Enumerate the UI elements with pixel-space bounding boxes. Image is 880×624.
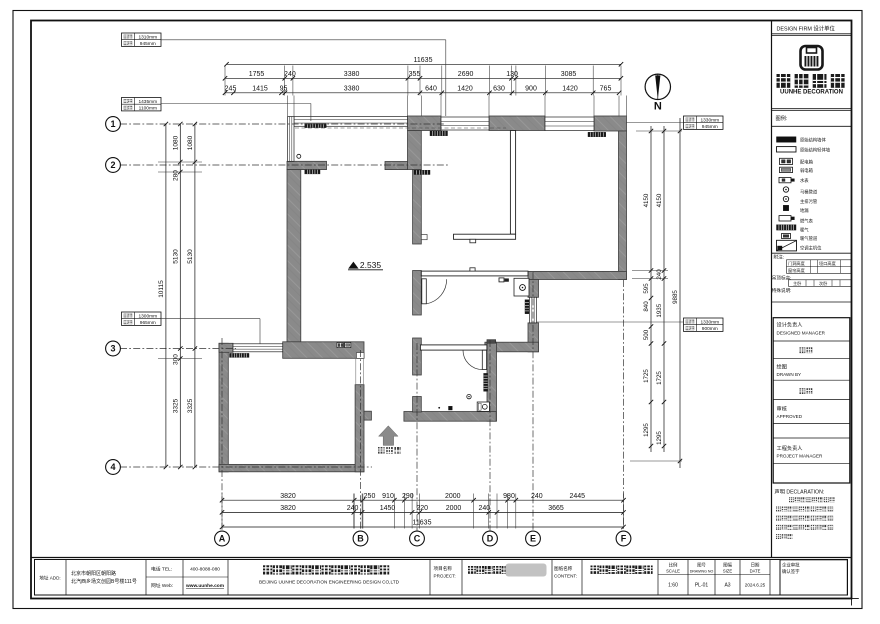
svg-text:3085: 3085 — [561, 71, 577, 78]
svg-text:1080: 1080 — [187, 135, 194, 150]
svg-text:240: 240 — [347, 505, 359, 512]
svg-text:95: 95 — [280, 85, 288, 92]
svg-text:2.535: 2.535 — [360, 260, 382, 270]
svg-text:10115: 10115 — [158, 280, 165, 298]
svg-text:主卧: 主卧 — [793, 280, 801, 287]
svg-text:地址 ADD:: 地址 ADD: — [39, 575, 60, 581]
svg-text:5130: 5130 — [173, 249, 180, 264]
svg-text:1420: 1420 — [562, 85, 578, 92]
svg-text:250: 250 — [364, 493, 376, 500]
svg-text:4150: 4150 — [643, 193, 650, 207]
svg-text:2: 2 — [110, 160, 115, 170]
svg-text:A: A — [219, 534, 226, 544]
svg-text:9885: 9885 — [672, 290, 679, 304]
svg-text:主排污管: 主排污管 — [800, 198, 818, 205]
svg-text:PROJECT MANAGER: PROJECT MANAGER — [777, 454, 824, 459]
svg-text:1:60: 1:60 — [668, 583, 678, 589]
svg-text:900mm: 900mm — [702, 326, 718, 332]
svg-text:特殊说明:: 特殊说明: — [772, 287, 792, 294]
svg-text:原始结构轻体墙: 原始结构轻体墙 — [800, 146, 831, 153]
svg-text:PROJECT:: PROJECT: — [434, 574, 456, 579]
svg-text:3380: 3380 — [344, 85, 360, 92]
svg-text:DESIGN FIRM 设计单位: DESIGN FIRM 设计单位 — [777, 25, 836, 33]
svg-text:1755: 1755 — [249, 71, 265, 78]
svg-text:1330mm: 1330mm — [700, 117, 719, 123]
svg-text:280: 280 — [173, 170, 180, 181]
svg-text:2000: 2000 — [446, 505, 462, 512]
svg-text:965mm: 965mm — [140, 320, 156, 326]
svg-text:声明 DECLARATION:: 声明 DECLARATION: — [775, 488, 825, 496]
svg-text:APPROVED: APPROVED — [777, 414, 803, 419]
svg-text:11635: 11635 — [413, 520, 432, 527]
svg-text:1310mm: 1310mm — [138, 34, 157, 40]
svg-text:2000: 2000 — [445, 493, 461, 500]
svg-text:3325: 3325 — [173, 398, 180, 413]
svg-text:3325: 3325 — [187, 398, 194, 413]
svg-text:1935: 1935 — [656, 303, 663, 317]
svg-text:E: E — [530, 534, 536, 544]
svg-text:2690: 2690 — [458, 71, 474, 78]
svg-text:图例:: 图例: — [776, 114, 788, 122]
svg-text:3820: 3820 — [280, 505, 296, 512]
svg-text:945mm: 945mm — [702, 124, 718, 130]
svg-text:240: 240 — [284, 71, 296, 78]
svg-text:比例: 比例 — [669, 562, 678, 569]
svg-text:1725: 1725 — [643, 369, 650, 383]
svg-text:3665: 3665 — [548, 505, 564, 512]
svg-text:1295: 1295 — [643, 423, 650, 437]
svg-text:F: F — [621, 534, 627, 544]
svg-text:原始结构墙体: 原始结构墙体 — [800, 137, 826, 144]
svg-text:项目名称: 项目名称 — [434, 565, 453, 572]
svg-text:11635: 11635 — [414, 57, 433, 64]
svg-text:400-8088-080: 400-8088-080 — [190, 567, 220, 573]
svg-text:审核: 审核 — [777, 405, 787, 413]
svg-text:B: B — [357, 534, 364, 544]
svg-text:840: 840 — [643, 301, 650, 312]
svg-text:水表: 水表 — [800, 177, 809, 184]
svg-text:电话 TEL:: 电话 TEL: — [151, 566, 172, 573]
svg-text:弱电箱: 弱电箱 — [800, 167, 814, 174]
svg-text:1450: 1450 — [380, 505, 396, 512]
svg-text:980: 980 — [503, 493, 515, 500]
svg-text:1435mm: 1435mm — [138, 99, 157, 105]
svg-text:220: 220 — [416, 505, 428, 512]
svg-text:355: 355 — [409, 71, 421, 78]
svg-text:SIZE: SIZE — [723, 569, 733, 574]
svg-text:北汽西乡场文创园B号楼111号: 北汽西乡场文创园B号楼111号 — [71, 578, 137, 585]
svg-text:绘图: 绘图 — [777, 363, 787, 371]
svg-text:图纸名称: 图纸名称 — [554, 565, 573, 572]
svg-text:5130: 5130 — [187, 249, 194, 264]
svg-text:DRAWING NO: DRAWING NO — [690, 570, 714, 574]
svg-text:1100mm: 1100mm — [139, 106, 157, 112]
svg-text:1295: 1295 — [656, 431, 663, 445]
svg-text:空调主机位: 空调主机位 — [800, 245, 822, 252]
svg-text:300: 300 — [173, 354, 180, 365]
svg-text:附注:: 附注: — [774, 254, 784, 261]
svg-text:图幅: 图幅 — [723, 562, 732, 569]
svg-text:企业审批: 企业审批 — [782, 562, 800, 569]
svg-text:DRAWN BY: DRAWN BY — [777, 372, 802, 377]
svg-text:245: 245 — [225, 85, 237, 92]
svg-text:工程负责人: 工程负责人 — [777, 444, 803, 452]
svg-text:630: 630 — [493, 85, 505, 92]
svg-text:地漏: 地漏 — [800, 207, 809, 214]
svg-text:130: 130 — [506, 71, 518, 78]
svg-text:2445: 2445 — [570, 493, 586, 500]
svg-text:500: 500 — [643, 329, 650, 340]
svg-text:确认签字: 确认签字 — [782, 568, 800, 575]
svg-text:1080: 1080 — [173, 135, 180, 150]
svg-text:595: 595 — [643, 283, 650, 294]
svg-text:CONTENT:: CONTENT: — [554, 574, 577, 579]
svg-text:DESIGNED MANAGER: DESIGNED MANAGER — [777, 331, 826, 336]
svg-text:3: 3 — [110, 344, 115, 354]
svg-text:C: C — [414, 534, 421, 544]
svg-text:N: N — [654, 101, 662, 113]
svg-text:网址 Web:: 网址 Web: — [151, 582, 173, 589]
svg-text:910: 910 — [382, 493, 394, 500]
svg-text:2024.6.25: 2024.6.25 — [745, 583, 766, 588]
svg-text:D: D — [487, 534, 494, 544]
svg-text:240: 240 — [531, 493, 543, 500]
svg-text:4150: 4150 — [656, 193, 663, 207]
svg-text:PL-01: PL-01 — [695, 583, 709, 589]
svg-text:设计负责人: 设计负责人 — [777, 321, 803, 329]
svg-text:北京市朝阳区朝阳路: 北京市朝阳区朝阳路 — [71, 570, 116, 577]
svg-text:945mm: 945mm — [140, 41, 156, 47]
svg-text:SCALE: SCALE — [666, 569, 680, 574]
svg-text:配电箱: 配电箱 — [800, 159, 814, 166]
svg-text:门洞高度: 门洞高度 — [788, 260, 806, 267]
svg-text:UUNHE DECORATION: UUNHE DECORATION — [780, 90, 843, 96]
svg-text:640: 640 — [425, 85, 437, 92]
svg-text:垭口高度: 垭口高度 — [819, 260, 837, 267]
svg-text:窗帘高度: 窗帘高度 — [788, 267, 806, 274]
svg-text:1415: 1415 — [252, 85, 268, 92]
svg-text:4: 4 — [110, 462, 115, 472]
svg-text:DATE: DATE — [750, 569, 761, 574]
svg-text:马桶管道: 马桶管道 — [800, 189, 818, 196]
svg-text:1: 1 — [110, 119, 115, 129]
svg-text:1420: 1420 — [457, 85, 473, 92]
svg-text:1725: 1725 — [656, 371, 663, 385]
svg-text:BEIJING UUNHE DECORATION ENGIN: BEIJING UUNHE DECORATION ENGINEERING DES… — [259, 580, 400, 585]
svg-text:www.uunhe.com: www.uunhe.com — [185, 583, 224, 589]
svg-text:燃气表: 燃气表 — [800, 217, 814, 224]
svg-text:暖气管道: 暖气管道 — [800, 235, 818, 242]
svg-text:3820: 3820 — [280, 493, 296, 500]
svg-text:暖气: 暖气 — [800, 226, 809, 233]
svg-text:900: 900 — [525, 85, 537, 92]
svg-text:765: 765 — [600, 85, 612, 92]
svg-text:次卧: 次卧 — [819, 280, 827, 287]
svg-text:1330mm: 1330mm — [700, 319, 719, 325]
svg-text:A3: A3 — [724, 583, 730, 589]
svg-text:3380: 3380 — [344, 71, 360, 78]
svg-text:1300mm: 1300mm — [138, 313, 157, 319]
